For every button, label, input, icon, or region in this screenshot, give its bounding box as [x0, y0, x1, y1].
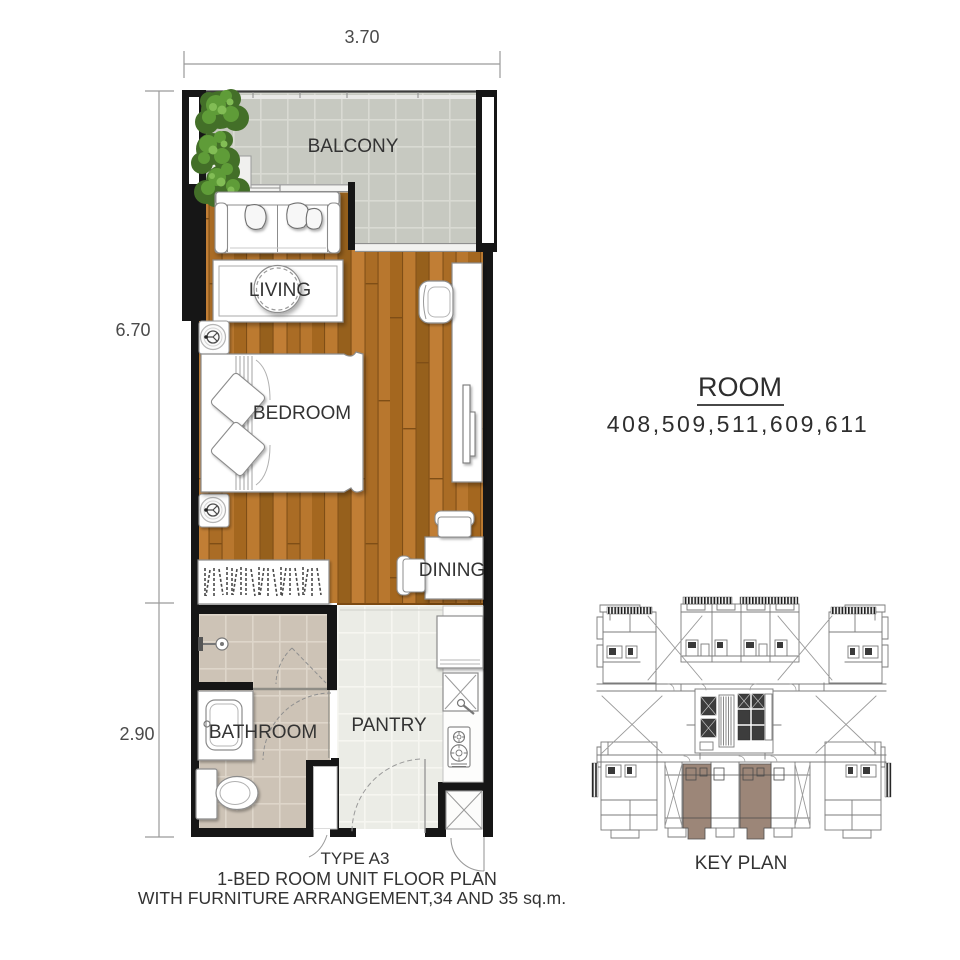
svg-text:ROOM: ROOM [698, 372, 782, 402]
svg-text:408,509,511,609,611: 408,509,511,609,611 [607, 411, 869, 437]
svg-text:6.70: 6.70 [115, 320, 150, 340]
svg-text:DINING: DINING [419, 560, 486, 581]
svg-text:TYPE A3: TYPE A3 [321, 849, 390, 868]
svg-text:BALCONY: BALCONY [308, 136, 399, 157]
svg-text:BEDROOM: BEDROOM [253, 403, 351, 424]
svg-text:2.90: 2.90 [119, 724, 154, 744]
svg-text:LIVING: LIVING [249, 280, 311, 301]
svg-text:1-BED ROOM UNIT FLOOR PLAN: 1-BED ROOM UNIT FLOOR PLAN [217, 869, 497, 889]
svg-text:WITH FURNITURE ARRANGEMENT,34: WITH FURNITURE ARRANGEMENT,34 AND 35 sq.… [138, 888, 566, 908]
svg-text:PANTRY: PANTRY [351, 715, 427, 736]
svg-text:BATHROOM: BATHROOM [209, 722, 317, 743]
svg-text:3.70: 3.70 [344, 27, 379, 47]
svg-text:KEY PLAN: KEY PLAN [695, 853, 788, 874]
